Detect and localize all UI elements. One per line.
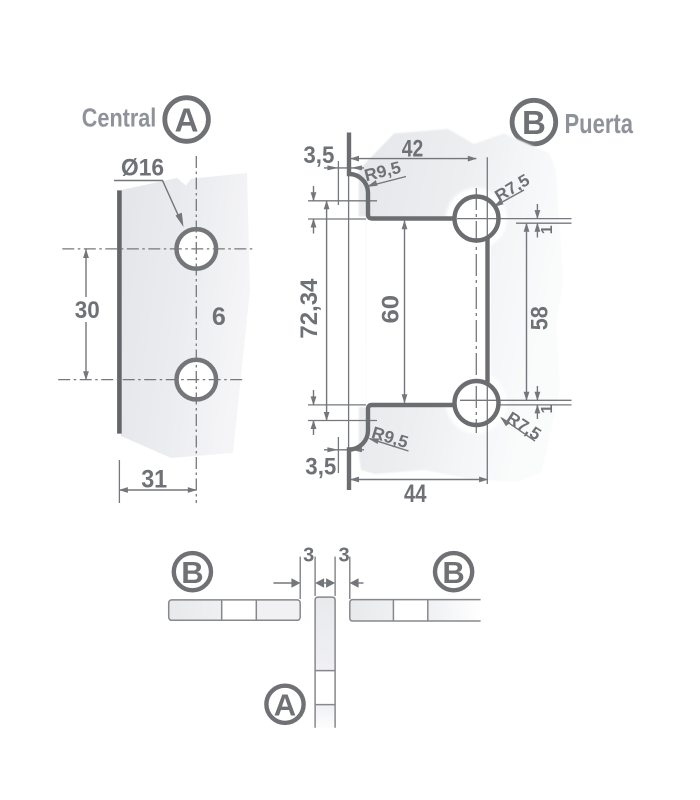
svg-text:6: 6: [212, 303, 226, 331]
svg-text:60: 60: [378, 295, 405, 324]
svg-text:3: 3: [303, 544, 314, 566]
svg-text:42: 42: [402, 135, 424, 162]
svg-text:72,34: 72,34: [296, 278, 323, 339]
svg-text:B: B: [522, 104, 546, 141]
svg-text:Ø16: Ø16: [121, 155, 164, 182]
svg-text:1: 1: [539, 225, 556, 234]
svg-text:A: A: [274, 688, 296, 723]
svg-text:3,5: 3,5: [303, 142, 334, 169]
svg-text:3: 3: [338, 544, 349, 566]
svg-text:31: 31: [141, 466, 167, 494]
svg-text:Central: Central: [82, 103, 157, 133]
svg-text:58: 58: [527, 306, 554, 330]
svg-text:B: B: [442, 555, 464, 590]
svg-text:44: 44: [404, 480, 427, 508]
svg-text:A: A: [175, 101, 199, 138]
svg-text:1: 1: [539, 404, 556, 413]
svg-text:30: 30: [75, 297, 100, 324]
svg-text:Puerta: Puerta: [565, 108, 634, 139]
svg-text:B: B: [181, 555, 203, 590]
svg-text:3,5: 3,5: [305, 454, 336, 481]
